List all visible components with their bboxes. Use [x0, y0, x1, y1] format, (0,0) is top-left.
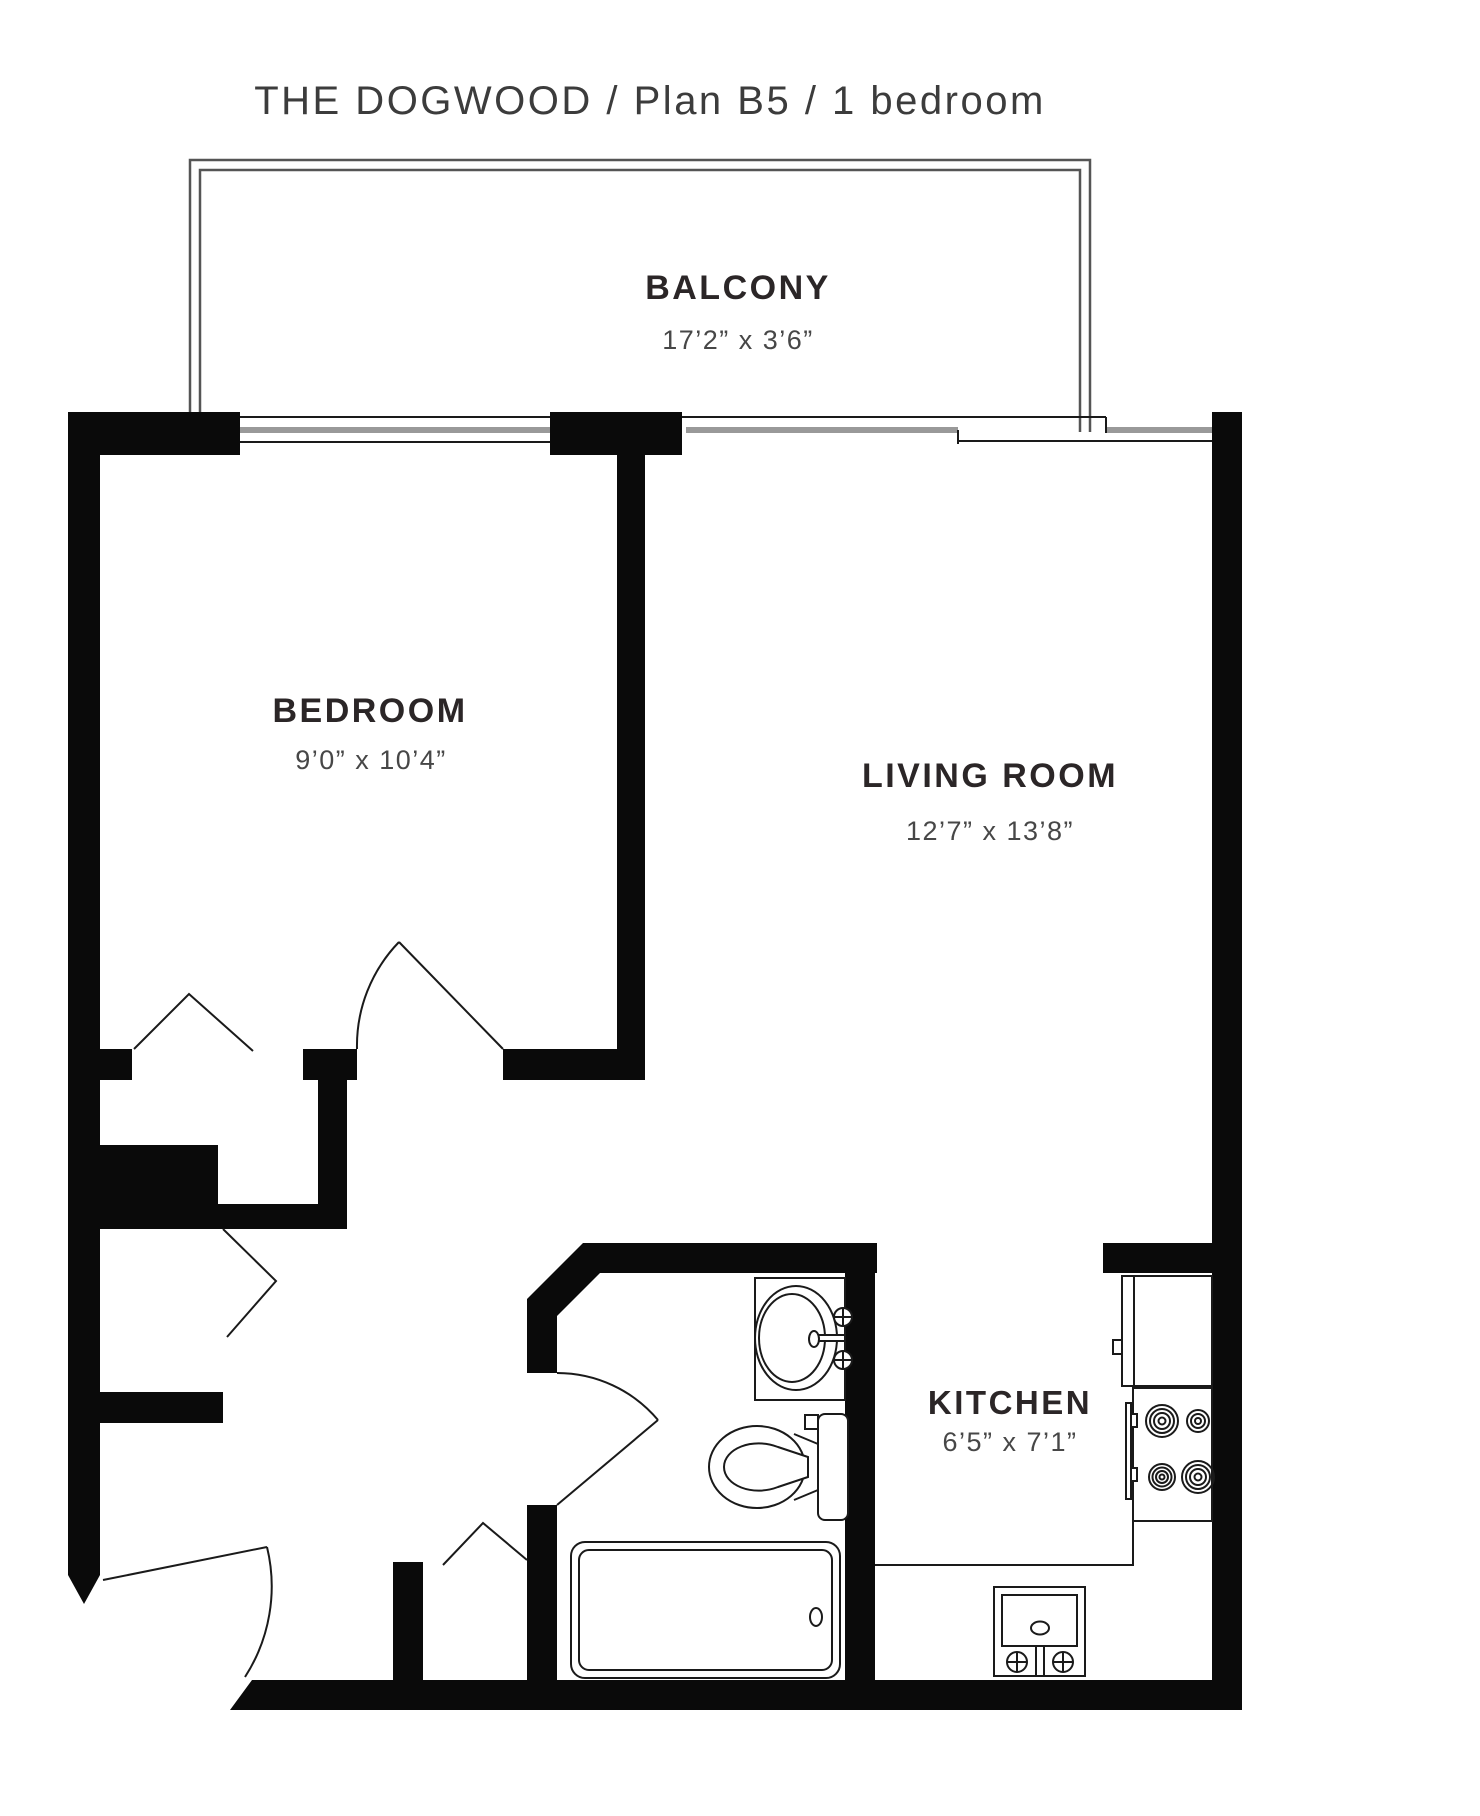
kitchen-sink-inner — [1002, 1595, 1077, 1646]
bathroom-sink-drain — [809, 1331, 819, 1347]
wall-bedroom-living-divider — [617, 455, 645, 1077]
bathroom-door-leaf — [557, 1420, 658, 1505]
bathroom-door-arc — [557, 1373, 658, 1420]
entry-door-arc — [245, 1547, 272, 1677]
balcony-label: BALCONY — [645, 269, 831, 307]
wall-bathroom-left-lower — [527, 1505, 557, 1692]
bathroom-sink — [755, 1278, 852, 1400]
wall-entry-stub — [100, 1392, 223, 1423]
stove-handle-tab-top — [1131, 1414, 1137, 1427]
bedroom-door-swing — [357, 942, 503, 1049]
fixtures — [571, 1276, 1214, 1678]
balcony-railing-outer — [190, 160, 1090, 432]
kitchen-label: KITCHEN — [928, 1384, 1092, 1421]
wall-bedroom-bottom-left — [68, 1049, 132, 1080]
kitchen-sink-drain — [1031, 1622, 1049, 1635]
bedroom-window-glass — [240, 427, 550, 433]
page-title: THE DOGWOOD / Plan B5 / 1 bedroom — [254, 79, 1046, 123]
living-room-label: LIVING ROOM — [862, 757, 1118, 795]
balcony-railing-inner — [200, 170, 1080, 432]
bedroom-closet-bifold-door — [134, 994, 253, 1051]
glazing — [240, 427, 1212, 433]
bedroom-door-leaf — [399, 942, 503, 1049]
bedroom-dimensions: 9’0” x 10’4” — [295, 745, 447, 775]
kitchen-dimensions: 6’5” x 7’1” — [942, 1427, 1077, 1457]
wall-bottom — [230, 1680, 1242, 1710]
wall-chase-block — [68, 1145, 218, 1229]
bathtub — [571, 1542, 840, 1678]
stove-handle-tab-bottom — [1131, 1468, 1137, 1481]
bathtub-inner — [579, 1550, 832, 1670]
bathroom-sink-spout — [818, 1335, 845, 1341]
fridge — [1113, 1276, 1212, 1386]
wall-left — [68, 412, 100, 1604]
entry-closet-bifold-door — [223, 1229, 276, 1337]
floor-plan: THE DOGWOOD / Plan B5 / 1 bedroom BALCON… — [0, 0, 1480, 1816]
walls — [68, 412, 1242, 1710]
bathtub-drain — [810, 1608, 822, 1626]
sliding-door-panel-a — [686, 427, 958, 433]
living-room-dimensions: 12’7” x 13’8” — [906, 816, 1074, 846]
stove — [1126, 1388, 1214, 1521]
entry-door-leaf — [103, 1547, 267, 1580]
wall-kitchen-top — [1103, 1243, 1212, 1273]
wall-bedroom-bottom-right — [503, 1049, 645, 1080]
hall-closet-bifold-door — [443, 1523, 527, 1565]
toilet — [709, 1414, 848, 1520]
wall-top-middle — [550, 412, 682, 455]
bathroom-door-swing — [557, 1373, 658, 1505]
bedroom-label: BEDROOM — [272, 692, 467, 730]
kitchen-sink-faucet — [1036, 1646, 1044, 1676]
wall-right — [1212, 412, 1242, 1710]
kitchen-sink — [994, 1587, 1085, 1676]
wall-bathroom-kitchen-divider — [845, 1273, 875, 1692]
fridge-handle — [1113, 1340, 1122, 1354]
kitchen-counter-edge — [875, 1521, 1133, 1565]
fridge-body — [1122, 1276, 1212, 1386]
entry-door-swing — [103, 1547, 272, 1677]
balcony-railing — [190, 160, 1090, 432]
bedroom-door-arc — [357, 942, 399, 1049]
sliding-door-panel-c — [1106, 427, 1212, 433]
toilet-tank — [818, 1414, 848, 1520]
wall-bedroom-door-jamb — [303, 1049, 357, 1080]
toilet-flush-handle — [805, 1415, 818, 1429]
balcony-dimensions: 17’2” x 3’6” — [662, 325, 814, 355]
